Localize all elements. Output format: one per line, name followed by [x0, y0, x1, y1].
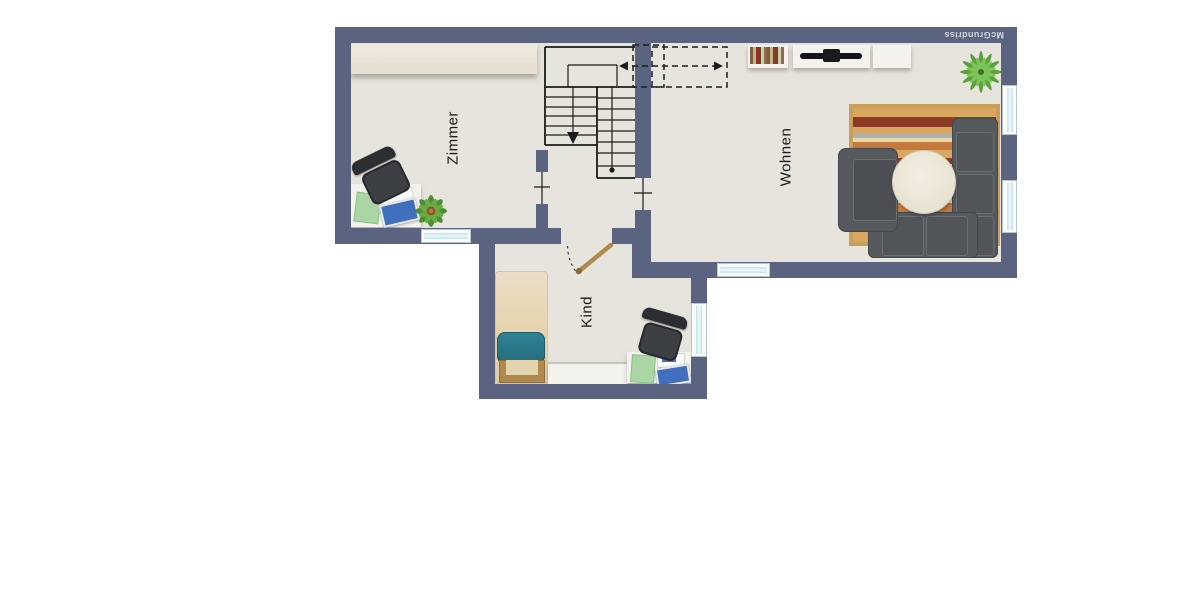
linework-layer: [0, 0, 1200, 600]
room-label-wohnen: Wohnen: [778, 128, 795, 187]
room-label-zimmer: Zimmer: [445, 111, 462, 165]
door-swing: [568, 245, 611, 274]
opening-arrow-right: [714, 62, 723, 71]
watermark-text: McGrundriss: [944, 30, 1004, 40]
door-knob: [576, 268, 582, 274]
ceiling-opening-dashed: [619, 45, 727, 87]
floorplan-canvas: Zimmer Wohnen Kind McGrundriss: [0, 0, 1200, 600]
door-leaf: [578, 245, 611, 272]
stair-down-arrow: [567, 132, 579, 144]
room-label-kind: Kind: [579, 296, 596, 328]
opening-arrow-left: [619, 62, 628, 71]
stair-walkline-start-dot: [609, 167, 614, 172]
